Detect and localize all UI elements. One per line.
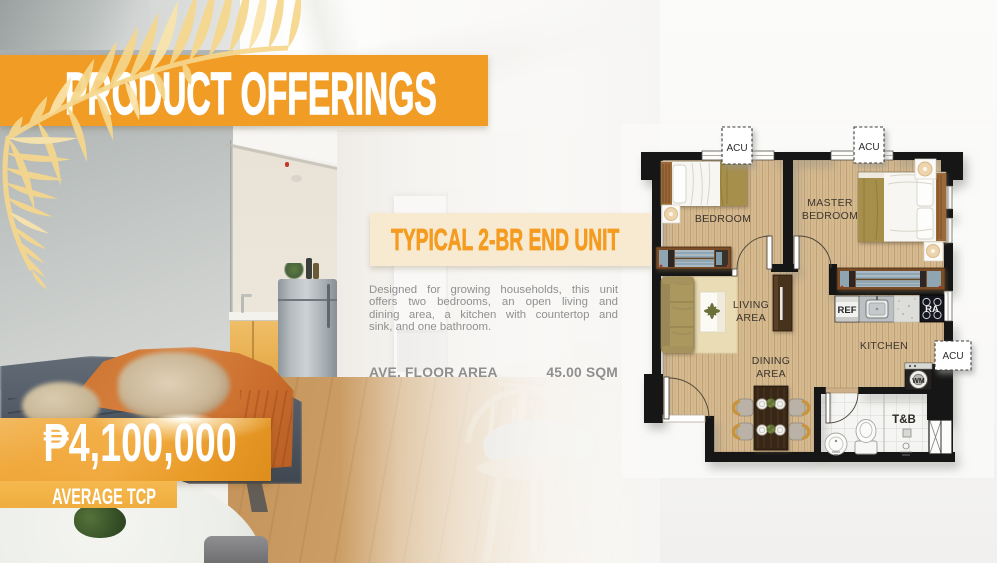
svg-text:BEDROOM: BEDROOM: [802, 210, 858, 222]
svg-text:BEDROOM: BEDROOM: [695, 213, 751, 225]
svg-text:KITCHEN: KITCHEN: [860, 340, 908, 352]
svg-text:ACU: ACU: [858, 142, 879, 153]
svg-text:WM: WM: [912, 378, 925, 385]
svg-text:AREA: AREA: [736, 312, 766, 324]
svg-text:ACU: ACU: [726, 143, 747, 154]
svg-text:LIVING: LIVING: [733, 299, 769, 311]
svg-text:AREA: AREA: [756, 368, 786, 380]
svg-text:REF: REF: [838, 305, 857, 316]
svg-text:T&B: T&B: [892, 414, 916, 426]
svg-text:MASTER: MASTER: [807, 197, 853, 209]
svg-text:ACU: ACU: [942, 351, 963, 362]
svg-text:RA: RA: [925, 304, 939, 315]
svg-text:DINING: DINING: [752, 355, 791, 367]
